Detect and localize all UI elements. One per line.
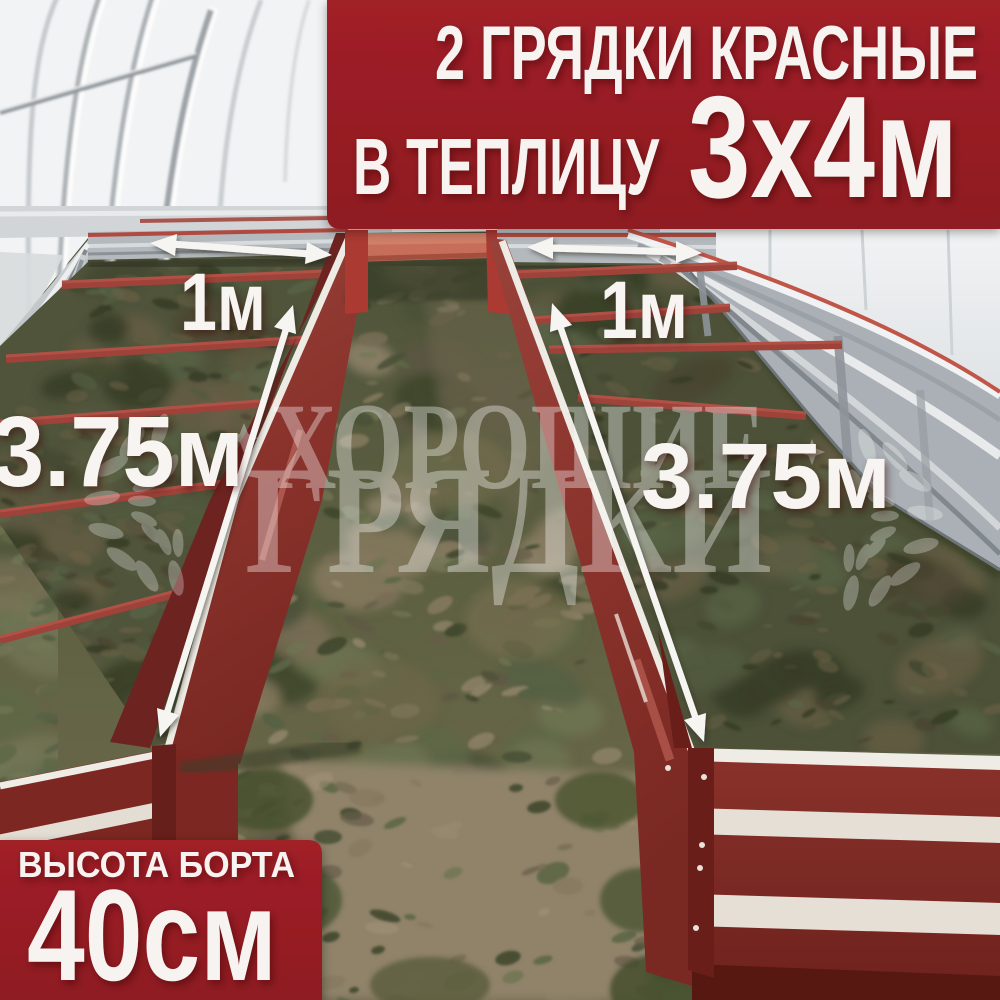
svg-text:3.75м: 3.75м <box>0 396 244 508</box>
svg-text:40см: 40см <box>27 862 277 1000</box>
svg-text:3.75м: 3.75м <box>641 424 891 528</box>
svg-text:1м: 1м <box>600 265 688 356</box>
svg-text:1м: 1м <box>180 257 266 348</box>
svg-text:В ТЕПЛИЦУ: В ТЕПЛИЦУ <box>353 122 660 211</box>
svg-text:3х4м: 3х4м <box>688 66 958 228</box>
